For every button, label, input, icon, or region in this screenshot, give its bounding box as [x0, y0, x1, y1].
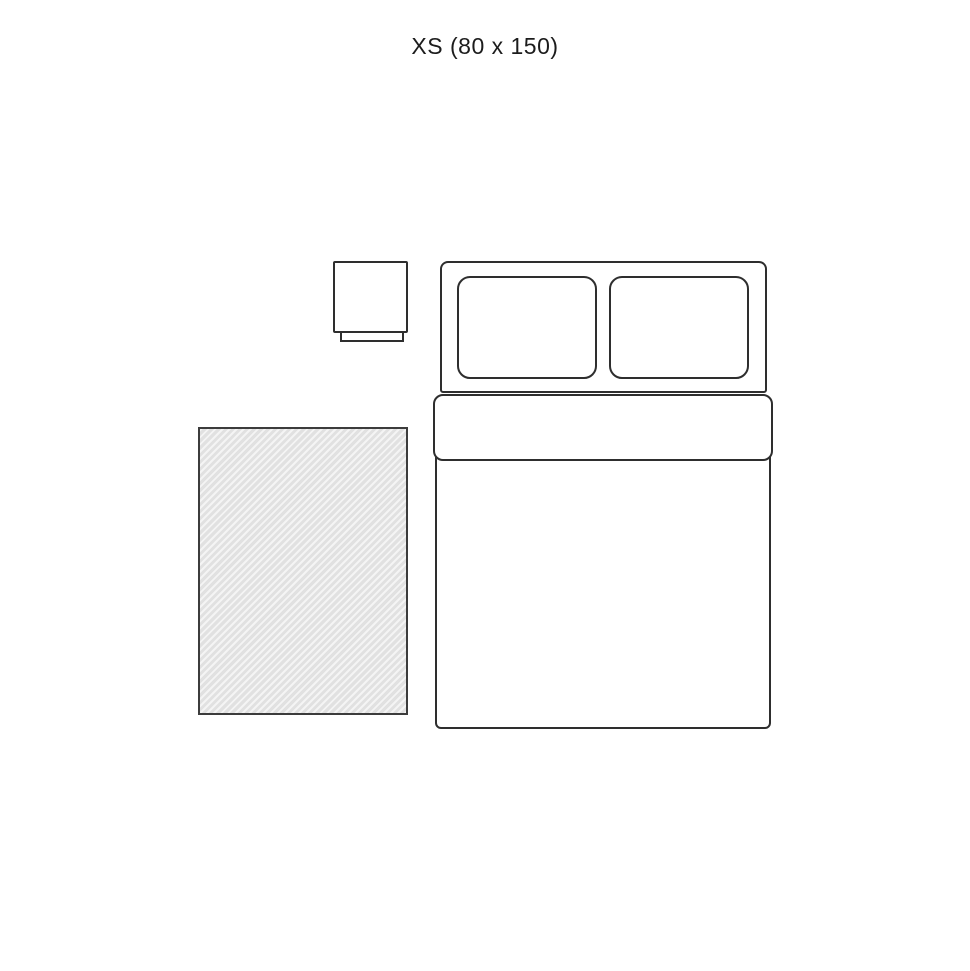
bed-headboard: [440, 261, 767, 393]
rug-xs: [198, 427, 408, 715]
bed-sheet-fold: [433, 394, 773, 461]
rug-size-guide-diagram: XS (80 x 150): [0, 0, 970, 971]
bedroom-scene: [0, 0, 970, 971]
pillow-right: [609, 276, 749, 379]
pillow-left: [457, 276, 597, 379]
nightstand-drawer: [340, 333, 404, 342]
nightstand: [333, 261, 408, 333]
